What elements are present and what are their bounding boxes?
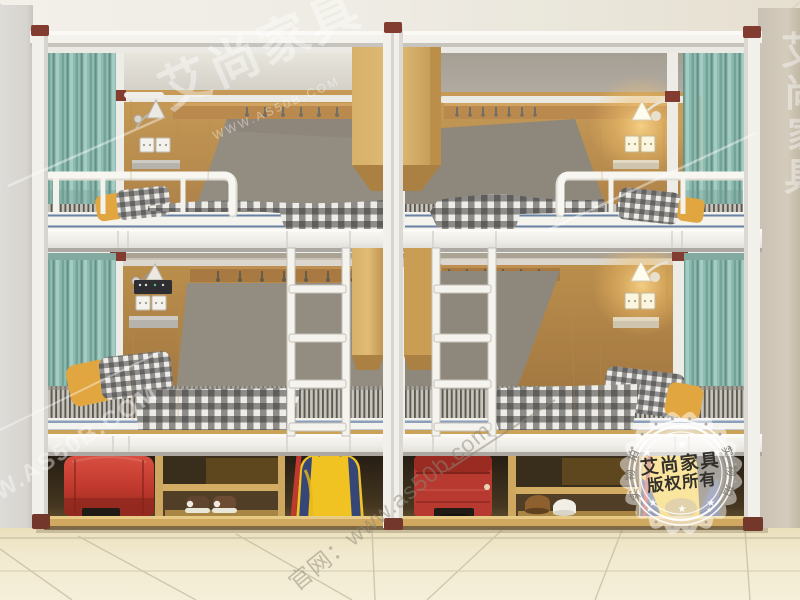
svg-text:★: ★ [712,447,722,459]
svg-text:具: 具 [784,157,800,199]
svg-text:★: ★ [642,447,652,459]
svg-text:艾: 艾 [781,31,800,73]
svg-text:★: ★ [677,439,687,451]
svg-text:★: ★ [707,498,716,509]
svg-text:★: ★ [678,504,687,515]
svg-text:尚: 尚 [784,73,800,115]
svg-text:家: 家 [787,115,800,157]
svg-text:★: ★ [649,498,658,509]
